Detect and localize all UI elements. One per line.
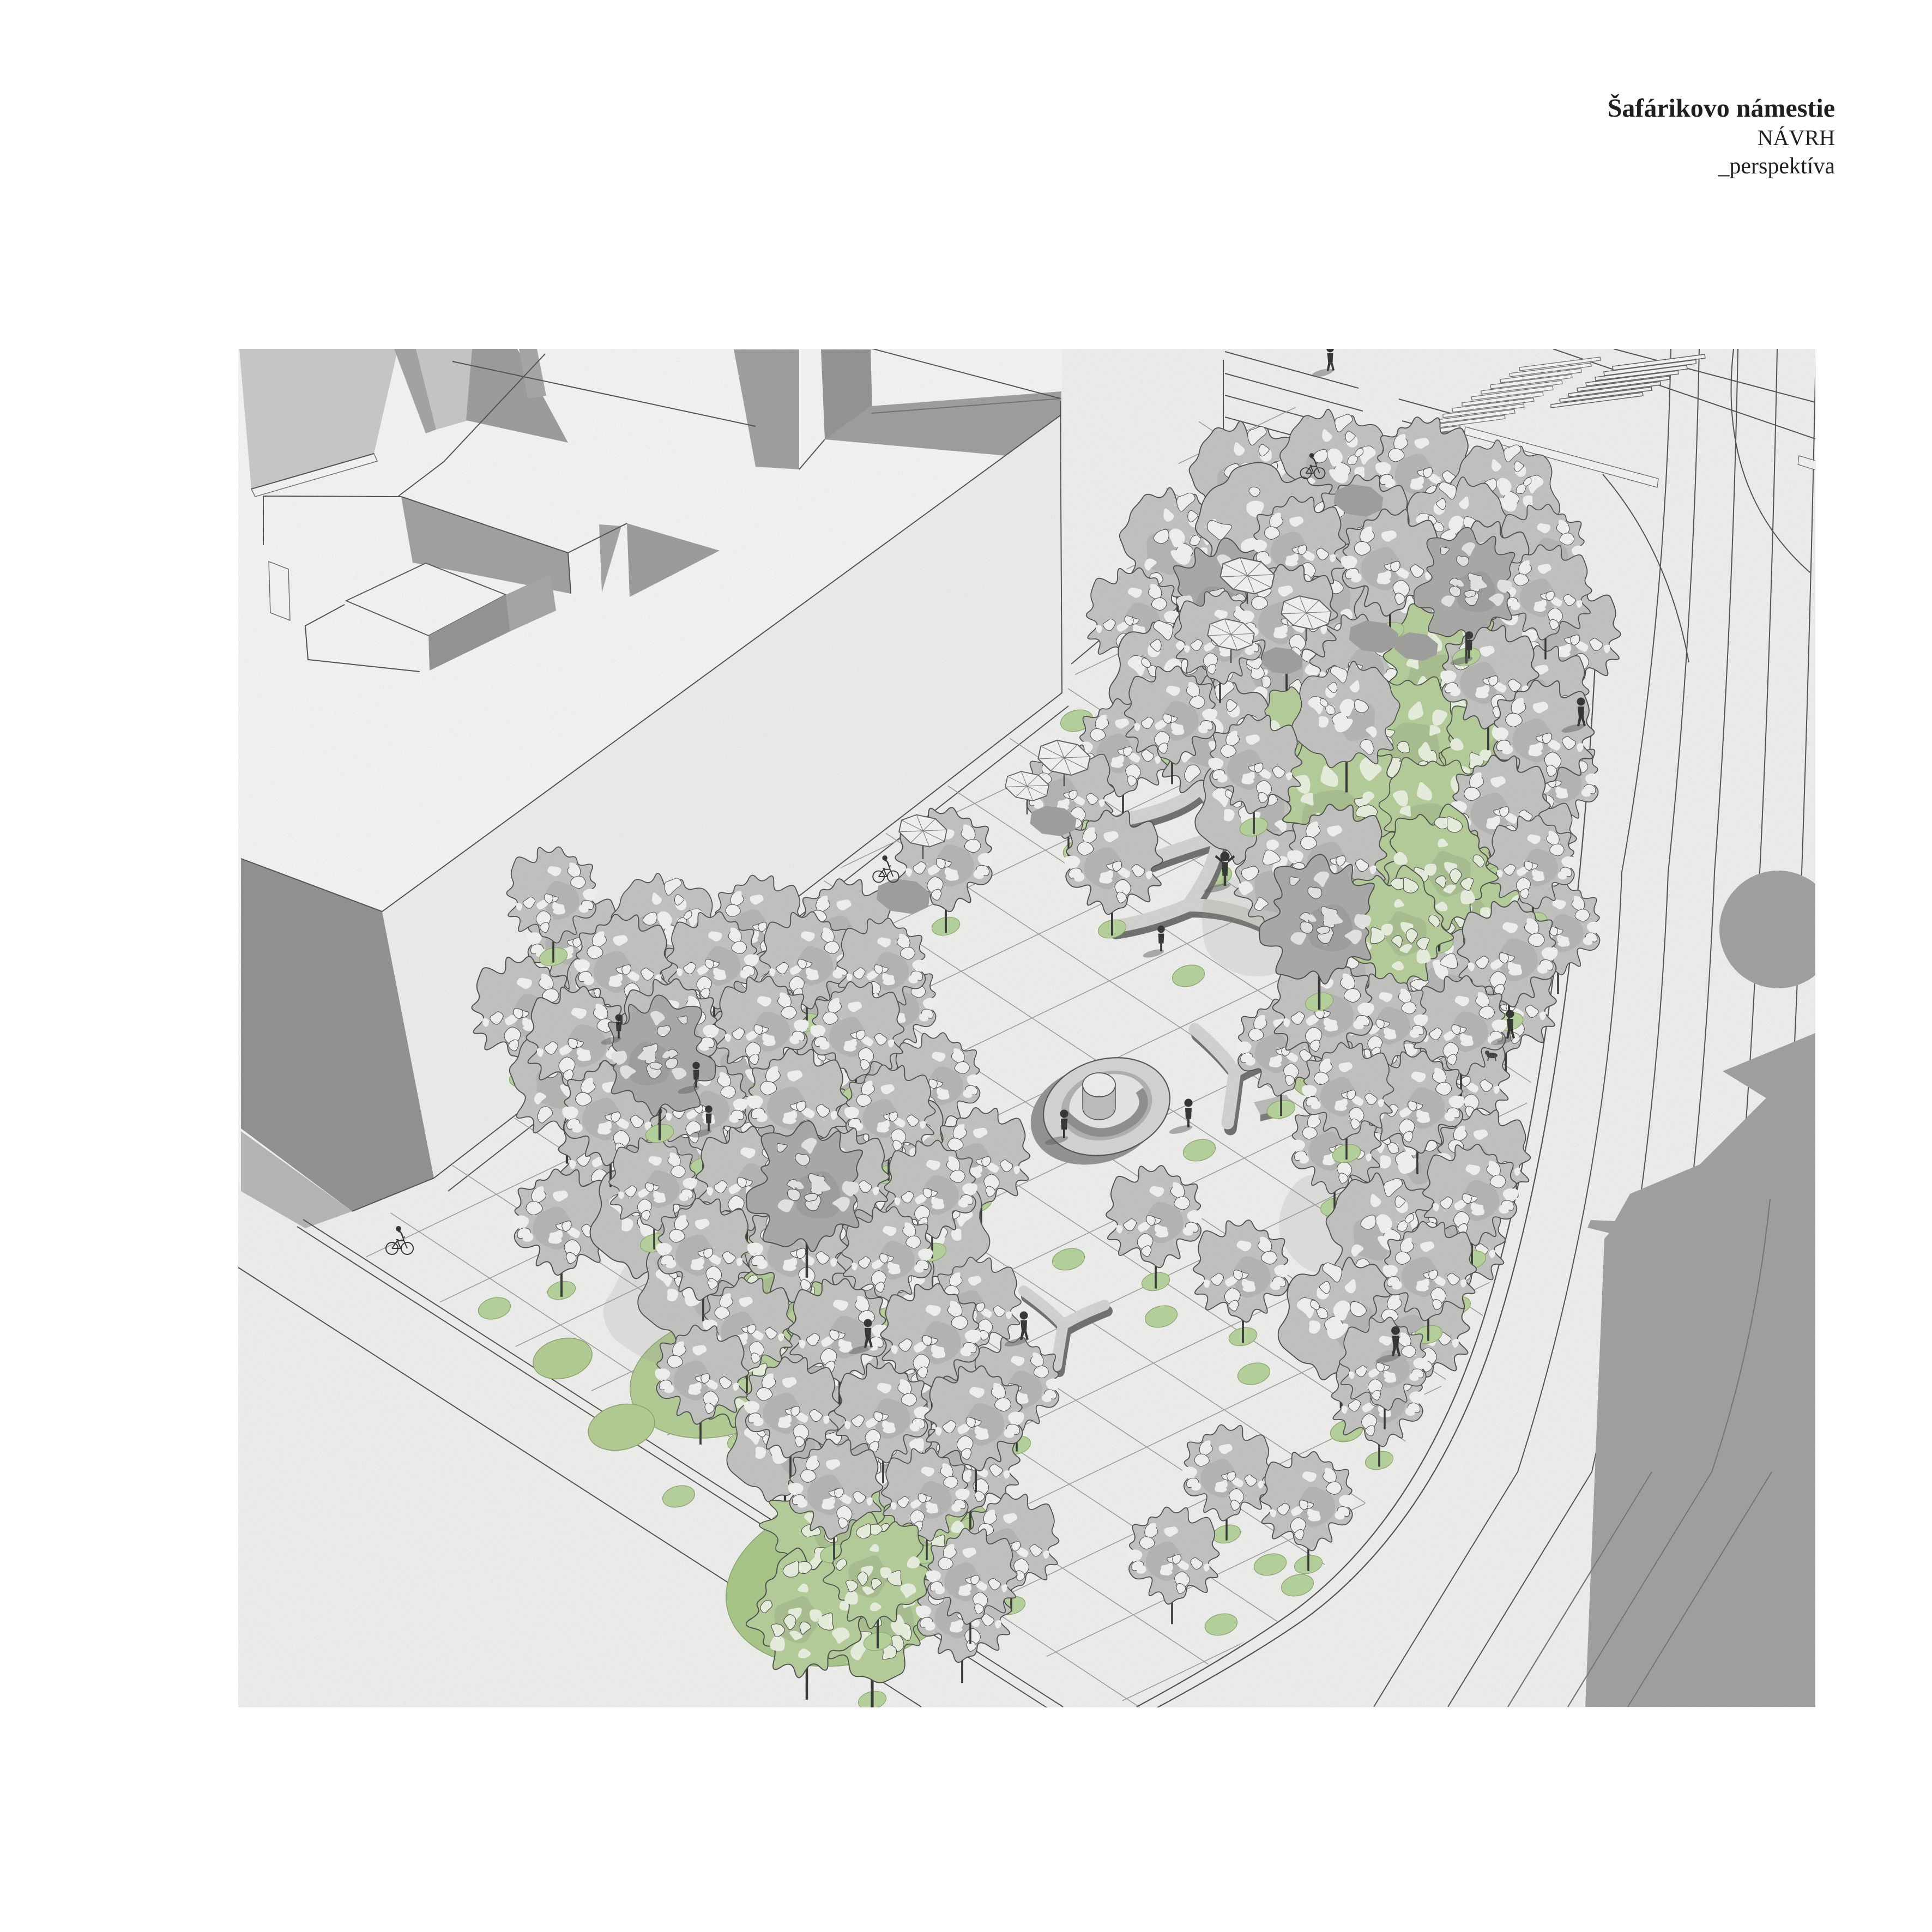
- svg-text:Šafárikovo námestie: Šafárikovo námestie: [1608, 93, 1835, 123]
- svg-text:_perspektíva: _perspektíva: [1717, 154, 1835, 179]
- svg-text:NÁVRH: NÁVRH: [1758, 125, 1835, 150]
